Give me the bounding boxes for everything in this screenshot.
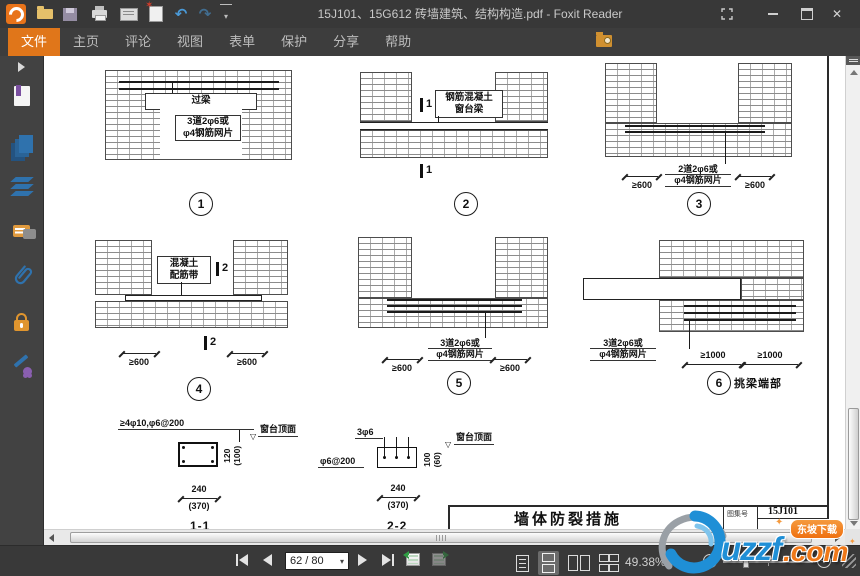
- detail4-left-pier: [95, 240, 152, 295]
- detail5-left-pier: [358, 237, 412, 298]
- detail4-leader-line: [181, 282, 182, 295]
- zoom-out-button[interactable]: −: [703, 554, 717, 568]
- zoom-percentage: 49.38%: [625, 555, 666, 569]
- tab-home[interactable]: 主页: [60, 28, 112, 56]
- detail6-rebar-line: [684, 319, 796, 321]
- section22-width-dim: 240: [390, 483, 405, 493]
- zoom-in-button[interactable]: +: [817, 554, 831, 568]
- detail3-dim-line-right: [738, 176, 771, 177]
- titleblock-atlas-label: 图集号: [727, 509, 748, 519]
- window-title: 15J101、15G612 砖墙建筑、结构构造.pdf - Foxit Read…: [240, 0, 700, 28]
- detail5-dim-right: ≥600: [500, 363, 520, 373]
- detail6-wall-beside-beam: [741, 278, 804, 300]
- tab-comment[interactable]: 评论: [112, 28, 164, 56]
- detail2-section-mark-lower: 1: [420, 164, 432, 178]
- detail6-caption: 挑梁端部: [734, 375, 782, 391]
- previous-view-icon: [403, 551, 409, 559]
- tab-help[interactable]: 帮助: [372, 28, 424, 56]
- detail6-leader-line: [689, 319, 690, 349]
- titleblock-divider: [757, 518, 827, 519]
- zoom-slider-tick: [768, 558, 769, 566]
- detail6-number: 6: [707, 371, 731, 395]
- detail4-section-mark: 2: [216, 262, 228, 276]
- comments-icon: [13, 225, 30, 237]
- status-bar: 62 / 80 ▾ 49.38% − +: [0, 545, 860, 576]
- foxit-logo-icon[interactable]: [6, 4, 26, 24]
- detail4-dim-right: ≥600: [237, 357, 257, 367]
- section11-rebar-label: ≥4φ10,φ6@200: [118, 418, 254, 430]
- page-combobox-caret-icon: ▾: [340, 557, 344, 566]
- rebar-dot: [211, 446, 214, 449]
- detail6-upper-wall: [659, 240, 804, 278]
- detail6-dim-line-left: [685, 364, 741, 365]
- sheet-frame-line: [827, 56, 829, 529]
- continuous-facing-view-button[interactable]: [599, 554, 617, 572]
- customize-toolbar-caret-icon[interactable]: ▾: [220, 4, 232, 26]
- titleblock-atlas-number: 15J101: [768, 506, 798, 517]
- detail3-rebar-line: [625, 125, 765, 127]
- detail3-leader-line: [725, 133, 726, 164]
- zoom-slider-thumb[interactable]: [743, 556, 749, 568]
- titleblock-divider: [757, 505, 758, 529]
- detail4-dim-left: ≥600: [129, 357, 149, 367]
- page-number-combobox[interactable]: 62 / 80 ▾: [285, 552, 349, 570]
- zoom-slider[interactable]: [723, 561, 813, 563]
- detail3-number: 3: [687, 192, 711, 216]
- detail3-dim-right: ≥600: [745, 180, 765, 190]
- detail3-rebar-note: 2道2φ6或φ4钢筋网片: [665, 164, 731, 187]
- titleblock-title: 墙体防裂措施: [514, 508, 622, 529]
- section11-height-dim: 120(100): [223, 439, 243, 473]
- split-view-handle[interactable]: [846, 56, 860, 65]
- detail5-rebar-note: 3道2φ6或φ4钢筋网片: [428, 338, 492, 361]
- redo-icon[interactable]: ↷: [196, 4, 214, 24]
- section11-surface-label: 窗台顶面: [258, 422, 298, 437]
- previous-view-button[interactable]: [406, 553, 420, 566]
- section22-height-dim: 100(60): [423, 443, 443, 477]
- detail6-dim-left: ≥1000: [701, 350, 726, 360]
- detail4-number: 4: [187, 377, 211, 401]
- paperclip-icon: [11, 264, 33, 288]
- detail3-dim-left: ≥600: [632, 180, 652, 190]
- detail5-rebar-line: [387, 311, 522, 313]
- scroll-left-arrow[interactable]: [49, 534, 54, 542]
- detail1-number: 1: [189, 192, 213, 216]
- section11-dim-line: [181, 498, 217, 499]
- detail2-left-pier: [360, 72, 412, 122]
- fullscreen-button[interactable]: [714, 0, 740, 28]
- tab-file[interactable]: 文件: [8, 28, 60, 56]
- vertical-scrollbar[interactable]: [845, 56, 860, 529]
- detail4-dim-line-right: [230, 353, 264, 354]
- detail4-band-label: 混凝土配筋带: [157, 256, 211, 284]
- detail5-rebar-line: [387, 299, 522, 301]
- detail2-lower-wall: [360, 130, 548, 158]
- rebar-dot: [182, 446, 185, 449]
- titleblock-border: [448, 505, 450, 529]
- next-view-button[interactable]: [432, 553, 446, 566]
- horizontal-scroll-thumb[interactable]: [70, 532, 812, 543]
- lock-icon: [14, 320, 29, 331]
- scrollbar-corner: [845, 529, 860, 545]
- section22-surface-label: 窗台顶面: [454, 430, 494, 445]
- detail6-rebar-line: [684, 312, 796, 314]
- rebar-dot: [383, 456, 386, 459]
- page-thumbnails-icon: [19, 135, 33, 153]
- maximize-button[interactable]: [794, 0, 820, 28]
- fullscreen-icon: [721, 8, 733, 20]
- section11-width-dim: 240: [191, 484, 206, 494]
- sidebar-item-comments[interactable]: [8, 217, 36, 245]
- first-page-button[interactable]: [236, 554, 248, 566]
- detail1-rebar-line: [119, 81, 279, 83]
- section22-width-dim-alt: (370): [387, 500, 408, 510]
- detail2-leader-line: [438, 116, 439, 123]
- detail2-sill-beam: [360, 122, 548, 130]
- sidebar-item-pages[interactable]: [8, 127, 36, 155]
- detail2-section-mark: 1: [420, 98, 432, 112]
- expand-panel-icon[interactable]: [18, 62, 25, 72]
- next-view-icon: [443, 551, 449, 559]
- sidebar-item-security[interactable]: [8, 307, 36, 335]
- facing-view-button[interactable]: [568, 555, 590, 571]
- previous-page-button[interactable]: [263, 554, 272, 566]
- titleblock-divider: [723, 505, 724, 529]
- save-icon[interactable]: [62, 4, 78, 24]
- detail4-dim-line-left: [122, 353, 156, 354]
- sidebar-item-bookmarks[interactable]: [8, 82, 36, 110]
- resize-grip[interactable]: [842, 554, 856, 568]
- rebar-dot: [395, 456, 398, 459]
- section11-name: 1-1: [190, 519, 210, 529]
- detail6-dim-right: ≥1000: [758, 350, 783, 360]
- section22-dim-line: [380, 497, 416, 498]
- sidebar-item-layers[interactable]: [8, 172, 36, 200]
- sidebar-item-signature[interactable]: [8, 352, 36, 380]
- detail5-number: 5: [447, 371, 471, 395]
- tab-view[interactable]: 视图: [164, 28, 216, 56]
- horizontal-scrollbar[interactable]: [44, 529, 845, 545]
- close-button[interactable]: ✕: [824, 0, 850, 28]
- single-page-view-button[interactable]: [516, 555, 529, 572]
- detail4-lower-wall: [95, 301, 288, 328]
- detail4-right-pier: [233, 240, 288, 295]
- detail3-right-pier: [738, 63, 792, 123]
- minimize-icon: [768, 13, 778, 15]
- rebar-dot: [407, 456, 410, 459]
- document-page: 过梁 3道2φ6或φ4钢筋网片 1 1 钢筋混凝土窗台梁 1 2 2道2φ6或φ…: [44, 56, 845, 529]
- recent-search-folder-icon[interactable]: [596, 35, 612, 47]
- page-layout-group: [516, 551, 617, 575]
- detail5-dim-left: ≥600: [392, 363, 412, 373]
- minimize-button[interactable]: [760, 0, 786, 28]
- section22-name: 2-2: [387, 519, 407, 529]
- scroll-grip: [436, 535, 446, 541]
- detail6-dim-line-right: [743, 364, 798, 365]
- sidebar-item-attachments[interactable]: [8, 262, 36, 290]
- detail3-rebar-line: [625, 131, 765, 133]
- section11-width-dim-alt: (370): [188, 501, 209, 511]
- tab-form[interactable]: 表单: [216, 28, 268, 56]
- undo-icon[interactable]: ↶: [172, 4, 190, 24]
- vertical-scroll-thumb[interactable]: [848, 408, 859, 520]
- detail1-rebar-note: 3道2φ6或φ4钢筋网片: [175, 115, 241, 141]
- detail3-lower-wall: [605, 123, 792, 157]
- layers-icon: [13, 177, 31, 196]
- section22-rebar-left-label: φ6@200: [318, 456, 364, 468]
- detail5-right-pier: [495, 237, 548, 298]
- title-bar: ✶ ↶ ↷ ▾ 15J101、15G612 砖墙建筑、结构构造.pdf - Fo…: [0, 0, 860, 28]
- bookmark-icon: [14, 86, 30, 106]
- scroll-up-arrow[interactable]: [850, 70, 858, 75]
- open-file-icon[interactable]: [36, 4, 54, 24]
- ribbon-tabs: 文件 主页 评论 视图 表单 保护 分享 帮助: [8, 28, 424, 56]
- detail6-cantilever-beam: [583, 278, 741, 300]
- continuous-view-button[interactable]: [538, 551, 559, 575]
- detail6-rebar-line: [684, 305, 796, 307]
- next-page-button[interactable]: [358, 554, 367, 566]
- menu-bar: 文件 主页 评论 视图 表单 保护 分享 帮助 ⚙ ▾ ◀ ▶: [0, 28, 860, 57]
- detail6-rebar-note: 3道2φ6或φ4钢筋网片: [590, 338, 656, 361]
- detail5-lower-wall: [358, 298, 548, 328]
- detail2-beam-label: 钢筋混凝土窗台梁: [435, 90, 503, 118]
- detail5-dim-line-right: [493, 359, 527, 360]
- level-marker-icon: ▽: [250, 433, 256, 441]
- section22-rebar-top-label: 3φ6: [355, 427, 383, 439]
- new-document-icon[interactable]: ✶: [148, 4, 164, 24]
- level-marker-icon: ▽: [445, 441, 451, 449]
- scroll-down-arrow[interactable]: [850, 521, 858, 526]
- maximize-icon: [801, 8, 813, 20]
- detail5-dim-line-left: [385, 359, 419, 360]
- detail5-rebar-line: [387, 305, 522, 307]
- foxit-reader-window: ✶ ↶ ↷ ▾ 15J101、15G612 砖墙建筑、结构构造.pdf - Fo…: [0, 0, 860, 576]
- email-icon[interactable]: [120, 4, 138, 24]
- tab-share[interactable]: 分享: [320, 28, 372, 56]
- rebar-dot: [211, 460, 214, 463]
- detail4-section-mark-lower: 2: [204, 336, 216, 350]
- detail3-dim-line-left: [625, 176, 658, 177]
- detail2-number: 2: [454, 192, 478, 216]
- page-number-value: 62 / 80: [290, 555, 340, 567]
- detail5-leader-line: [485, 313, 486, 338]
- signature-pen-icon: [11, 355, 33, 377]
- navigation-sidebar: [0, 56, 44, 545]
- print-icon[interactable]: [90, 4, 108, 24]
- detail1-rebar-line: [119, 88, 279, 90]
- last-page-button[interactable]: [382, 554, 394, 566]
- scroll-right-arrow[interactable]: [835, 534, 840, 542]
- tab-protect[interactable]: 保护: [268, 28, 320, 56]
- detail3-left-pier: [605, 63, 657, 123]
- rebar-dot: [182, 460, 185, 463]
